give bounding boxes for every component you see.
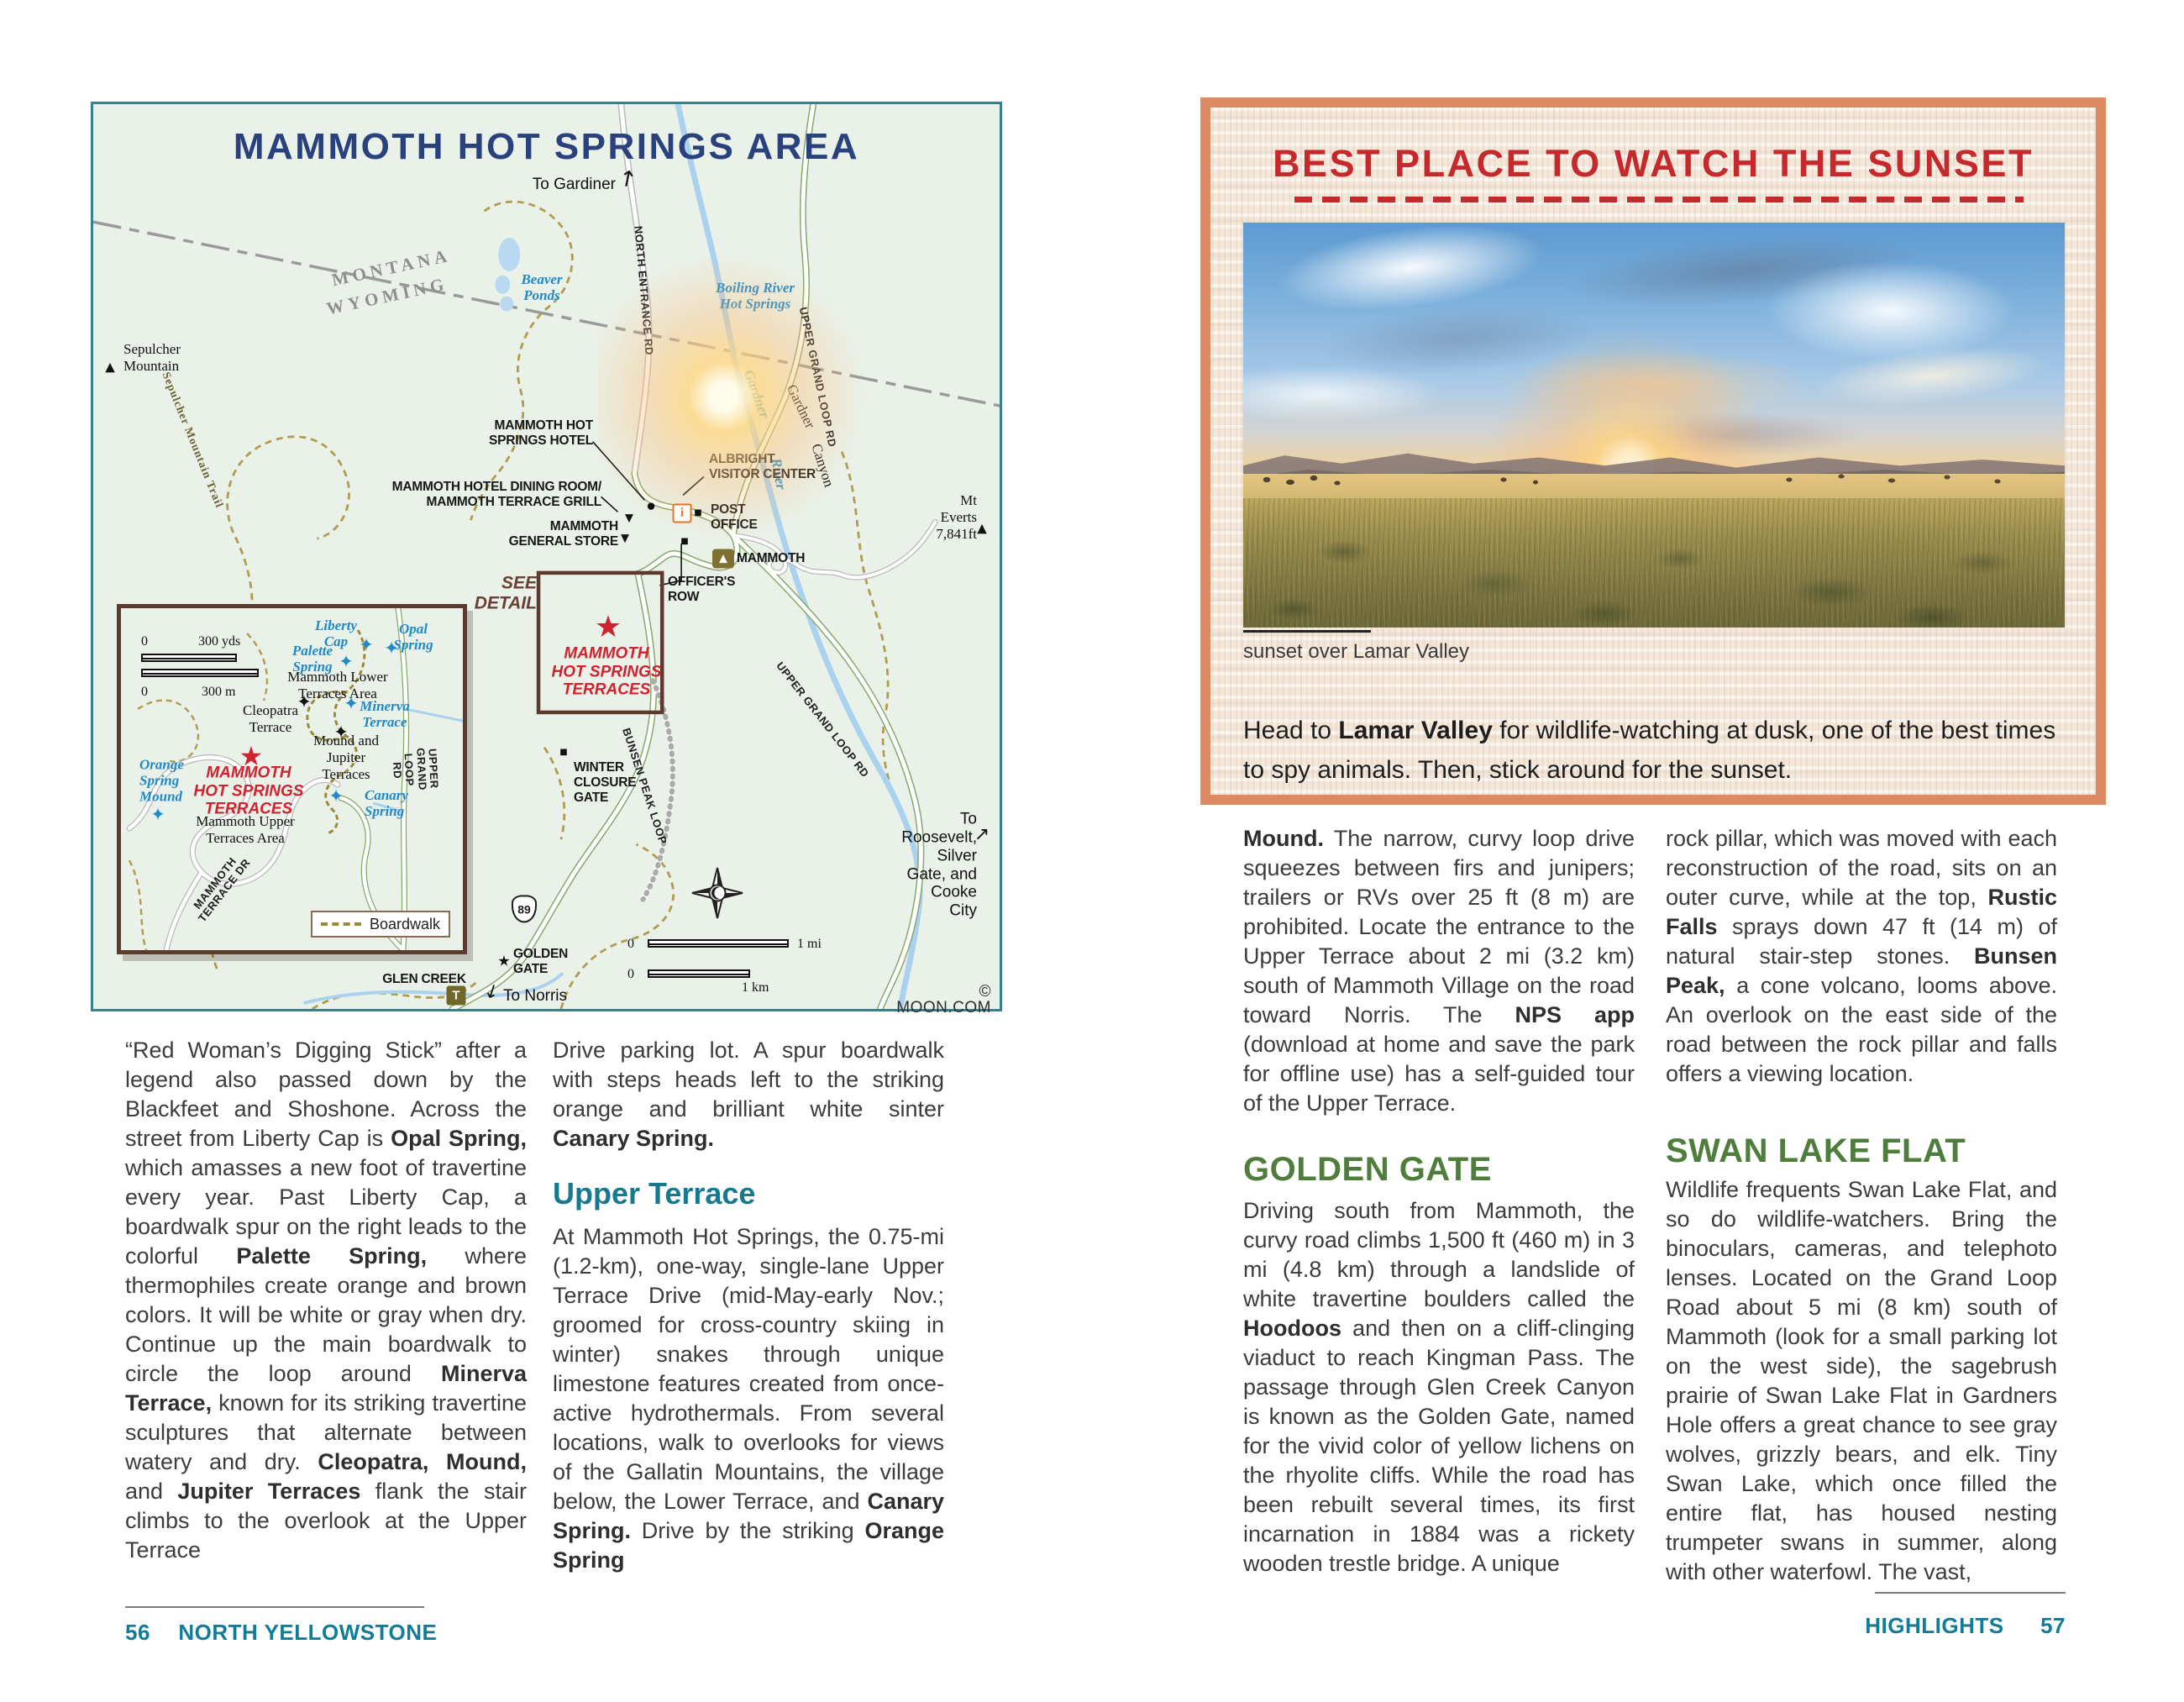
cleopatra-icon: ✦ <box>297 694 312 712</box>
mound-jupiter-icon: ✦ <box>333 724 349 742</box>
inset-terraces-star-icon: ★ <box>239 743 264 770</box>
trailhead-icon: T <box>447 986 466 1006</box>
left-col1-paragraph: “Red Woman’s Digging Stick” after a lege… <box>125 1036 527 1565</box>
compass-rose-icon <box>690 865 745 921</box>
orange-spring-icon: ✦ <box>150 806 165 824</box>
sunset-photo <box>1243 223 2065 628</box>
right-page-number: 57 <box>2040 1613 2066 1638</box>
dining-pointer-icon: ▼ <box>625 513 633 524</box>
post-office-square-icon: ■ <box>694 509 701 517</box>
photo-warm-haze <box>1243 223 2065 628</box>
store-pointer-icon: ▼ <box>621 533 629 544</box>
liberty-cap-icon: ✦ <box>359 637 374 654</box>
inset-scalebar-m <box>141 669 259 677</box>
right-col1-paragraph-b: Driving south from Mammoth, the curvy ro… <box>1243 1196 1635 1579</box>
hotel-dot-icon: ● <box>647 502 655 511</box>
inset-scale-yds: 300 yds <box>198 635 240 649</box>
palette-spring-icon: ✦ <box>339 654 354 671</box>
canary-spring-icon: ✦ <box>328 788 344 806</box>
boardwalk-legend-label: Boardwalk <box>370 916 440 933</box>
inset-scale-zero-yds: 0 <box>141 635 148 649</box>
right-col1-paragraph-a: Mound. The narrow, curvy loop drive sque… <box>1243 824 1635 1118</box>
route-89-shield: 89 <box>512 896 537 923</box>
map-mammoth-hot-springs-area: MAMMOTH HOT SPRINGS AREA To GardinerNORT… <box>91 102 1002 1011</box>
opal-spring-icon: ✦ <box>384 640 399 658</box>
scalebar-km <box>648 969 750 978</box>
right-footer-label: HIGHLIGHTS <box>1865 1613 2003 1638</box>
everts-peak-icon: ▲ <box>977 523 987 535</box>
scalebar-mi <box>648 939 789 948</box>
inset-scalebar-yds <box>141 654 237 662</box>
sepulcher-peak-icon: ▲ <box>105 361 115 374</box>
left-footer-label: NORTH YELLOWSTONE <box>178 1620 437 1645</box>
callout-dashed-divider <box>1294 197 2024 202</box>
roosevelt-arrow: ↗ <box>974 826 990 844</box>
golden-gate-heading: GOLDEN GATE <box>1243 1151 1492 1189</box>
boardwalk-dash-sample <box>321 922 361 926</box>
callout-title: BEST PLACE TO WATCH THE SUNSET <box>1200 142 2106 186</box>
right-col2-paragraph-b: Wildlife frequents Swan Lake Flat, and s… <box>1666 1175 2057 1587</box>
campground-icon: ▲ <box>712 549 734 569</box>
sunset-callout-box: BEST PLACE TO WATCH THE SUNSET <box>1200 97 2106 805</box>
officers-row-square-icon: ■ <box>680 538 688 546</box>
left-col2-paragraph-a: Drive parking lot. A spur boardwalk with… <box>553 1036 944 1153</box>
left-footer: 56 NORTH YELLOWSTONE <box>125 1620 437 1646</box>
swan-lake-flat-heading: SWAN LAKE FLAT <box>1666 1132 1966 1170</box>
golden-gate-star-icon: ★ <box>497 955 510 969</box>
photo-caption: sunset over Lamar Valley <box>1243 640 1469 664</box>
left-page-number: 56 <box>125 1620 150 1645</box>
map-detail-inset: Liberty CapOpal SpringPalette SpringMamm… <box>117 604 467 954</box>
terraces-star-icon: ★ <box>595 612 622 643</box>
info-icon: i <box>673 504 692 523</box>
minerva-icon: ✦ <box>344 696 359 713</box>
inset-scale-m: 300 m <box>202 686 235 699</box>
norris-arrow: ↓ <box>481 982 501 1005</box>
left-page: MAMMOTH HOT SPRINGS AREA To GardinerNORT… <box>0 0 1092 1702</box>
inset-scale-zero-m: 0 <box>141 686 148 699</box>
guidebook-spread: MAMMOTH HOT SPRINGS AREA To GardinerNORT… <box>0 0 2184 1702</box>
caption-rule <box>1243 630 1371 633</box>
callout-lead-text: Head to Lamar Valley for wildlife-watchi… <box>1243 711 2063 790</box>
left-col2-paragraph-b: At Mammoth Hot Springs, the 0.75-mi (1.2… <box>553 1222 944 1575</box>
boardwalk-legend: Boardwalk <box>311 911 450 938</box>
winter-gate-square-icon: ■ <box>559 749 567 757</box>
right-footer-rule <box>1875 1592 2066 1594</box>
right-footer: HIGHLIGHTS 57 <box>1764 1613 2066 1639</box>
upper-terrace-heading: Upper Terrace <box>553 1176 755 1211</box>
right-col2-paragraph-a: rock pillar, which was moved with each r… <box>1666 824 2057 1089</box>
left-footer-rule <box>125 1606 424 1608</box>
right-page: BEST PLACE TO WATCH THE SUNSET <box>1092 0 2184 1702</box>
